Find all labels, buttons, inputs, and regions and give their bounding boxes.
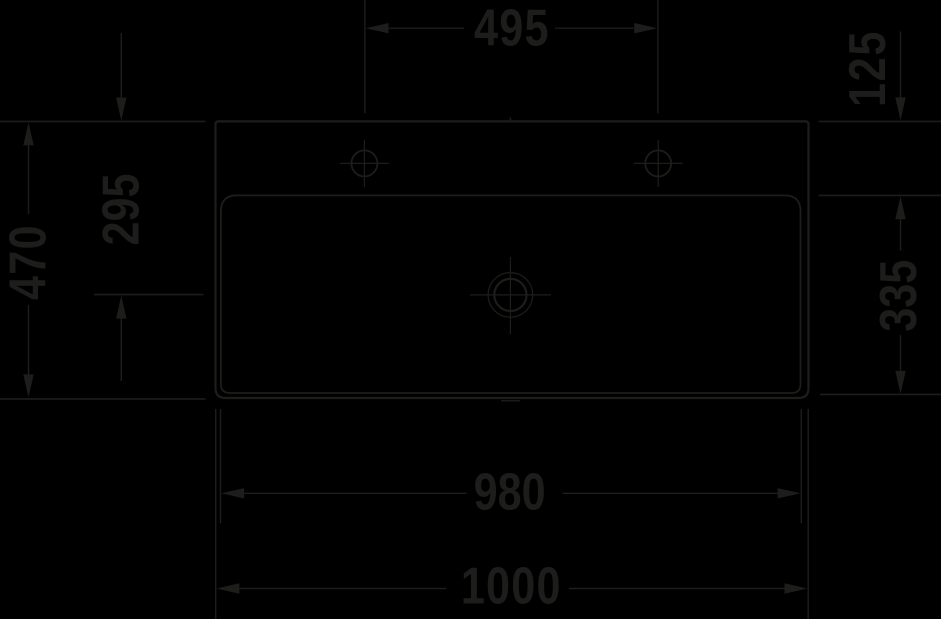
svg-text:125: 125 — [839, 30, 897, 107]
svg-text:495: 495 — [474, 0, 550, 57]
svg-text:1000: 1000 — [461, 558, 562, 616]
svg-text:335: 335 — [870, 260, 928, 332]
svg-text:295: 295 — [93, 174, 151, 246]
svg-text:470: 470 — [0, 224, 58, 300]
svg-text:980: 980 — [474, 464, 546, 522]
